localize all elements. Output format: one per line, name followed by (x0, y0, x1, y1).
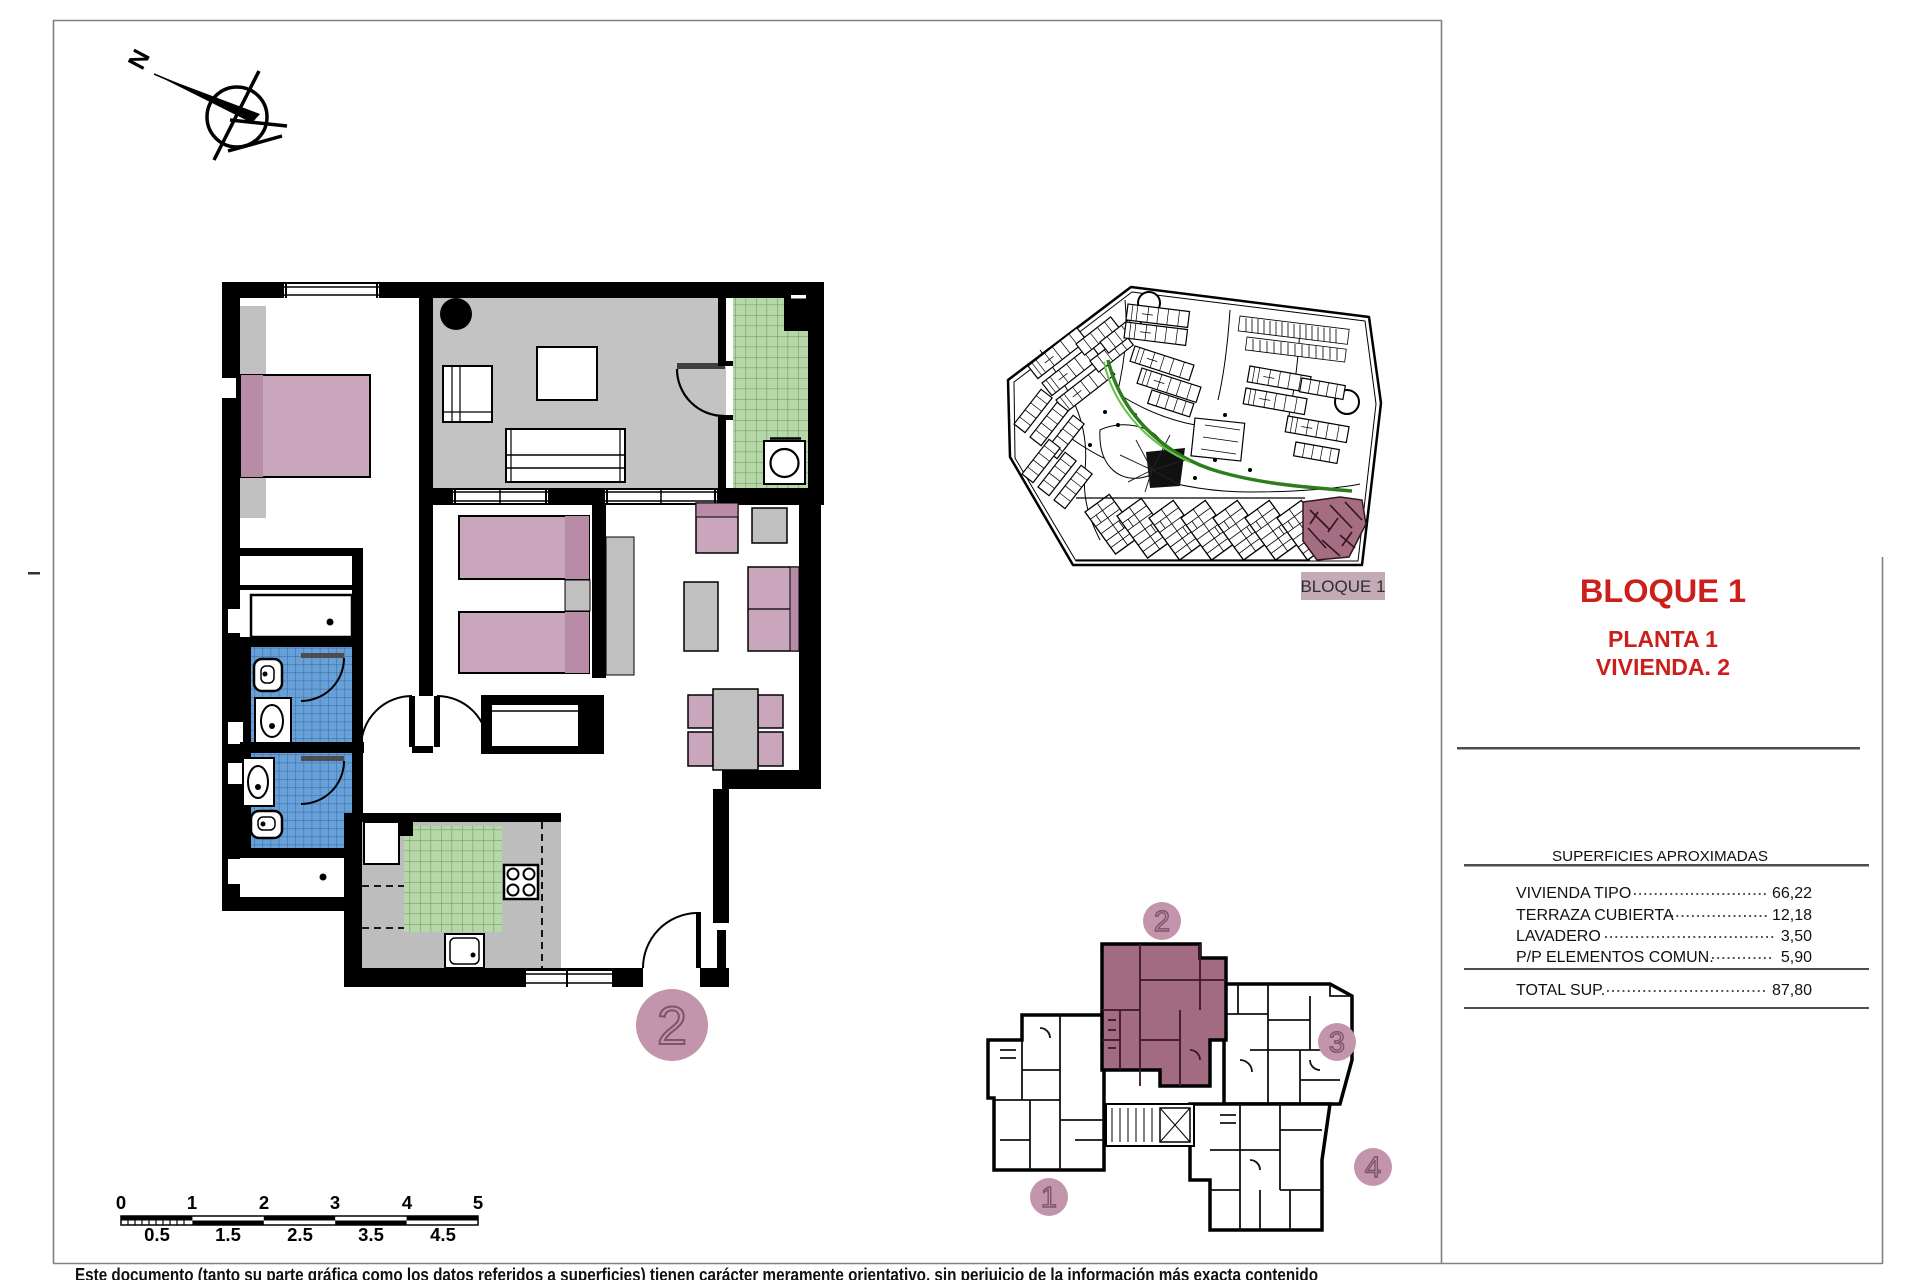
svg-text:3: 3 (330, 1192, 340, 1213)
svg-text:12,18: 12,18 (1772, 907, 1812, 924)
svg-text:TOTAL SUP.: TOTAL SUP. (1516, 982, 1605, 999)
svg-text:3,50: 3,50 (1781, 928, 1812, 945)
svg-text:0.5: 0.5 (144, 1224, 170, 1245)
svg-text:VIVIENDA. 2: VIVIENDA. 2 (1596, 654, 1730, 680)
svg-text:4.5: 4.5 (430, 1224, 456, 1245)
svg-text:3: 3 (1329, 1027, 1345, 1059)
svg-text:LAVADERO: LAVADERO (1516, 928, 1601, 945)
svg-text:2: 2 (259, 1192, 269, 1213)
svg-text:SUPERFICIES APROXIMADAS: SUPERFICIES APROXIMADAS (1552, 848, 1768, 865)
svg-text:1.5: 1.5 (215, 1224, 241, 1245)
svg-text:TERRAZA CUBIERTA: TERRAZA CUBIERTA (1516, 907, 1674, 924)
svg-text:2: 2 (657, 996, 687, 1056)
svg-text:87,80: 87,80 (1772, 982, 1812, 999)
svg-text:BLOQUE 1: BLOQUE 1 (1580, 573, 1746, 609)
svg-text:66,22: 66,22 (1772, 885, 1812, 902)
svg-text:1: 1 (187, 1192, 197, 1213)
svg-text:Este documento (tanto su parte: Este documento (tanto su parte gráfica c… (75, 1265, 1318, 1280)
svg-text:BLOQUE 1: BLOQUE 1 (1300, 577, 1385, 596)
svg-text:2.5: 2.5 (287, 1224, 313, 1245)
svg-text:5,90: 5,90 (1781, 949, 1812, 966)
svg-text:P/P ELEMENTOS COMUN.: P/P ELEMENTOS COMUN. (1516, 949, 1714, 966)
svg-text:5: 5 (473, 1192, 483, 1213)
svg-text:1: 1 (1041, 1182, 1057, 1214)
svg-text:2: 2 (1154, 906, 1170, 938)
svg-text:3.5: 3.5 (358, 1224, 384, 1245)
svg-text:PLANTA 1: PLANTA 1 (1608, 626, 1718, 652)
svg-text:4: 4 (1365, 1152, 1381, 1184)
svg-text:4: 4 (402, 1192, 413, 1213)
svg-text:0: 0 (116, 1192, 126, 1213)
svg-text:VIVIENDA TIPO: VIVIENDA TIPO (1516, 885, 1631, 902)
